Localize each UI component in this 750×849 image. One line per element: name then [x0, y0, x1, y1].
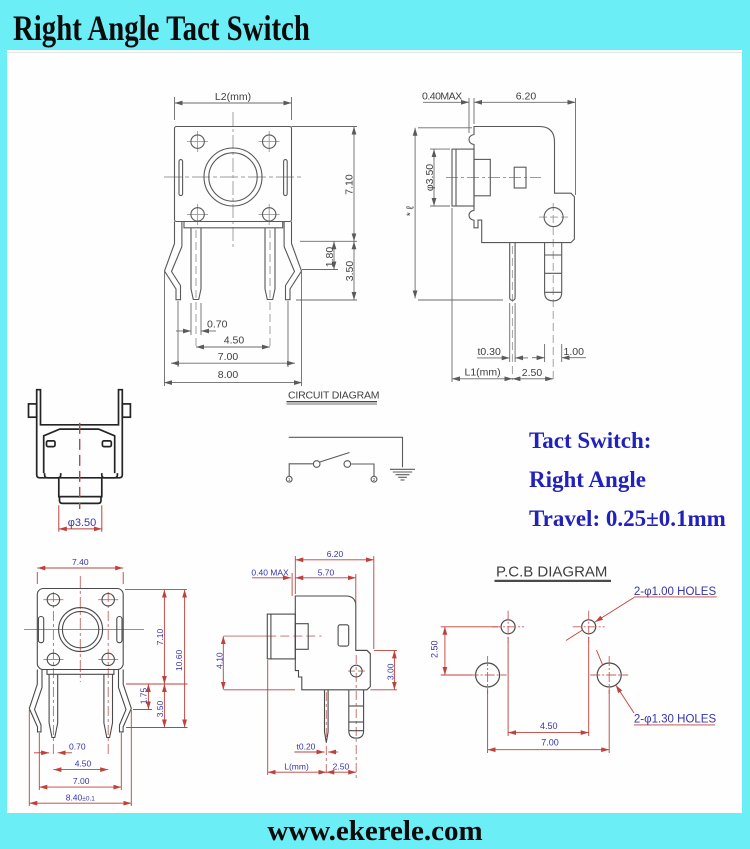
svg-text:7.00: 7.00	[73, 776, 90, 786]
svg-text:7.10: 7.10	[344, 174, 356, 195]
svg-text:8.40±0.1: 8.40±0.1	[66, 793, 96, 803]
svg-text:1.80: 1.80	[324, 247, 336, 268]
svg-text:7.00: 7.00	[218, 351, 239, 363]
svg-text:t0.30: t0.30	[478, 346, 502, 358]
svg-text:1.00: 1.00	[564, 346, 585, 358]
svg-text:t0.20: t0.20	[297, 742, 316, 752]
svg-text:3.00: 3.00	[386, 663, 396, 680]
svg-text:0.40MAX: 0.40MAX	[422, 91, 462, 103]
svg-text:6.20: 6.20	[327, 549, 344, 559]
svg-text:5.70: 5.70	[318, 568, 335, 578]
svg-text:φ3.50: φ3.50	[68, 517, 97, 529]
svg-text:P.C.B DIAGRAM: P.C.B DIAGRAM	[496, 564, 607, 581]
svg-text:3.50: 3.50	[344, 261, 356, 282]
svg-text:CIRCUIT DIAGRAM: CIRCUIT DIAGRAM	[288, 390, 379, 402]
svg-text:L(mm): L(mm)	[284, 762, 309, 772]
svg-text:7.40: 7.40	[72, 557, 89, 567]
svg-text:2.50: 2.50	[522, 367, 543, 379]
svg-text:* ℓ: * ℓ	[405, 205, 417, 216]
svg-text:7.10: 7.10	[155, 628, 165, 645]
svg-text:3.50: 3.50	[155, 700, 165, 717]
svg-text:8.00: 8.00	[218, 369, 239, 381]
svg-text:1.75: 1.75	[139, 687, 149, 704]
svg-text:4.50: 4.50	[75, 759, 92, 769]
svg-text:L1(mm): L1(mm)	[465, 367, 501, 379]
svg-text:2.50: 2.50	[430, 640, 440, 658]
svg-text:2.50: 2.50	[333, 762, 350, 772]
svg-text:0.70: 0.70	[207, 319, 228, 331]
svg-text:2-φ1.30 HOLES: 2-φ1.30 HOLES	[634, 714, 717, 726]
svg-text:0.70: 0.70	[69, 742, 86, 752]
svg-text:4.50: 4.50	[540, 721, 558, 731]
svg-text:L2(mm): L2(mm)	[215, 91, 251, 103]
svg-text:0.40 MAX: 0.40 MAX	[251, 568, 289, 578]
svg-text:φ3.50: φ3.50	[424, 164, 436, 191]
svg-text:4.50: 4.50	[224, 335, 245, 347]
svg-text:10.60: 10.60	[174, 649, 184, 671]
svg-text:4.10: 4.10	[215, 652, 225, 669]
svg-text:6.20: 6.20	[516, 91, 537, 103]
svg-text:2-φ1.00 HOLES: 2-φ1.00 HOLES	[634, 586, 717, 598]
svg-text:7.00: 7.00	[541, 738, 559, 748]
